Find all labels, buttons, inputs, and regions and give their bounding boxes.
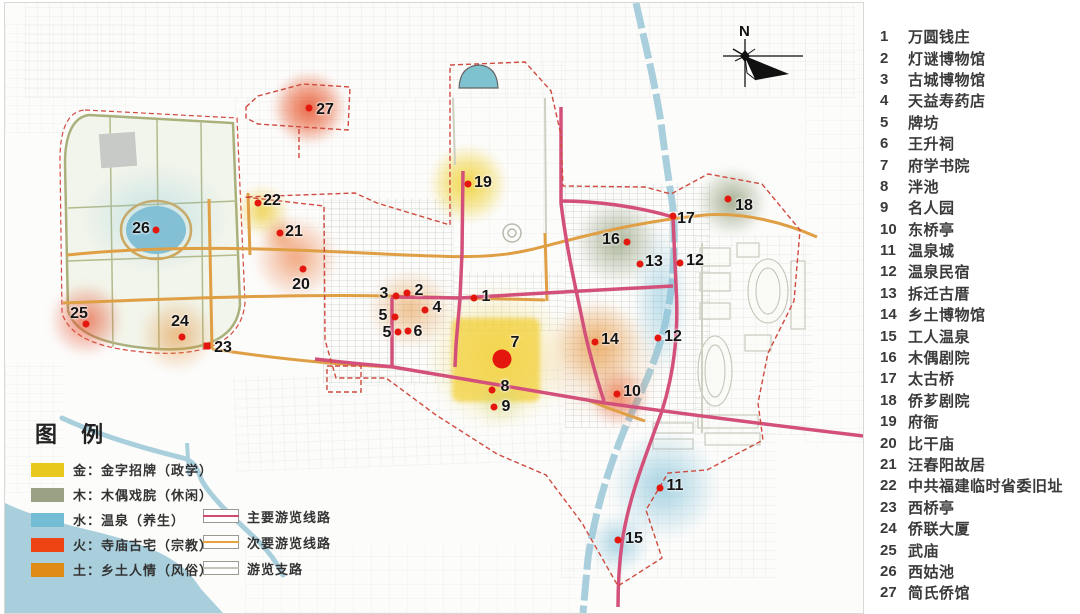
map-marker-label-6: 6	[414, 323, 423, 341]
poi-name: 名人园	[908, 197, 955, 218]
tourist-map: 1234556789101112121314151617181920212223…	[4, 2, 864, 614]
poi-number: 11	[880, 242, 908, 259]
legend-category-label: 火：寺庙古宅（宗教）	[73, 535, 213, 554]
poi-name: 工人温泉	[908, 326, 970, 347]
poi-number: 12	[880, 263, 908, 280]
legend-swatch	[31, 488, 64, 502]
map-marker-label-18: 18	[735, 197, 753, 215]
legend-category-label: 土：乡土人情（风俗）	[73, 560, 213, 579]
map-marker-label-14: 14	[601, 331, 619, 349]
legend-routes: 主要游览线路次要游览线路游览支路	[203, 503, 383, 581]
map-marker-dot-12	[677, 260, 684, 267]
legend-route-label: 游览支路	[247, 559, 303, 578]
poi-name: 东桥亭	[908, 219, 955, 240]
map-marker-dot-24	[179, 334, 186, 341]
legend-category-label: 金：金字招牌（政学）	[73, 460, 213, 479]
poi-number: 17	[880, 370, 908, 387]
map-marker-dot-20	[300, 266, 307, 273]
poi-row: 25武庙	[880, 539, 1078, 560]
map-marker-dot-3	[393, 293, 400, 300]
legend-route-label: 主要游览线路	[247, 507, 331, 526]
map-marker-label-5: 5	[379, 307, 388, 325]
legend-route-swatch	[203, 561, 239, 575]
poi-row: 10东桥亭	[880, 219, 1078, 240]
poi-name: 乡土博物馆	[908, 304, 986, 325]
legend-route-swatch	[203, 535, 239, 549]
poi-row: 19府衙	[880, 411, 1078, 432]
poi-row: 5牌坊	[880, 112, 1078, 133]
poi-name: 温泉城	[908, 240, 955, 261]
poi-row: 24侨联大厦	[880, 518, 1078, 539]
map-legend: 图 例 金：金字招牌（政学）木：木偶戏脘（休闲）水：温泉（养生）火：寺庙古宅（宗…	[31, 417, 381, 582]
map-marker-label-13: 13	[645, 253, 663, 271]
poi-number: 1	[880, 28, 908, 45]
poi-name: 王升祠	[908, 133, 955, 154]
map-marker-dot-12	[655, 335, 662, 342]
poi-row: 11温泉城	[880, 240, 1078, 261]
poi-name: 武庙	[908, 540, 939, 561]
legend-route-line	[203, 567, 239, 569]
legend-route: 次要游览线路	[203, 529, 383, 555]
legend-route: 主要游览线路	[203, 503, 383, 529]
poi-row: 1万圆钱庄	[880, 26, 1078, 47]
poi-number: 4	[880, 92, 908, 109]
poi-name: 泮池	[908, 176, 939, 197]
map-marker-dot-26	[153, 227, 160, 234]
poi-name: 西姑池	[908, 561, 955, 582]
map-marker-label-23: 23	[214, 339, 232, 357]
legend-swatch	[31, 538, 64, 552]
poi-name: 比干庙	[908, 433, 955, 454]
poi-name: 侨联大厦	[908, 518, 970, 539]
map-marker-dot-4	[422, 307, 429, 314]
poi-row: 15工人温泉	[880, 325, 1078, 346]
map-marker-label-7: 7	[511, 334, 520, 352]
map-marker-dot-13	[637, 261, 644, 268]
poi-row: 18侨芗剧院	[880, 390, 1078, 411]
poi-number: 25	[880, 542, 908, 559]
poi-row: 17太古桥	[880, 368, 1078, 389]
poi-number: 14	[880, 306, 908, 323]
map-marker-dot-19	[465, 181, 472, 188]
poi-number: 6	[880, 135, 908, 152]
poi-number: 13	[880, 285, 908, 302]
legend-swatch	[31, 513, 64, 527]
legend-route-line	[203, 515, 239, 517]
map-marker-label-27: 27	[316, 101, 334, 119]
poi-name: 府衙	[908, 411, 939, 432]
poi-name: 古城博物馆	[908, 69, 986, 90]
map-marker-label-10: 10	[623, 383, 641, 401]
map-marker-label-26: 26	[132, 220, 150, 238]
legend-category-label: 木：木偶戏脘（休闲）	[73, 485, 213, 504]
poi-number: 7	[880, 157, 908, 174]
map-marker-dot-11	[657, 485, 664, 492]
compass-icon	[705, 21, 815, 101]
poi-row: 27简氏侨馆	[880, 582, 1078, 603]
legend-swatch	[31, 463, 64, 477]
legend-route-swatch	[203, 509, 239, 523]
poi-row: 8泮池	[880, 176, 1078, 197]
poi-name: 太古桥	[908, 368, 955, 389]
poi-name: 天益寿药店	[908, 90, 986, 111]
map-marker-label-11: 11	[667, 477, 684, 495]
map-marker-label-17: 17	[677, 210, 695, 228]
poi-number: 10	[880, 221, 908, 238]
poi-row: 12温泉民宿	[880, 261, 1078, 282]
map-marker-label-19: 19	[474, 174, 492, 192]
poi-number: 2	[880, 50, 908, 67]
poi-row: 13拆迁古厝	[880, 283, 1078, 304]
map-marker-dot-22	[255, 200, 262, 207]
poi-list: 1万圆钱庄2灯谜博物馆3古城博物馆4天益寿药店5牌坊6王升祠7府学书院8泮池9名…	[880, 26, 1078, 604]
poi-number: 23	[880, 499, 908, 516]
map-marker-label-21: 21	[285, 223, 303, 241]
poi-name: 温泉民宿	[908, 261, 970, 282]
poi-row: 22中共福建临时省委旧址	[880, 475, 1078, 496]
map-marker-dot-5	[395, 329, 402, 336]
map-marker-dot-23	[204, 343, 211, 350]
map-marker-label-25: 25	[70, 305, 88, 323]
poi-panel: 1万圆钱庄2灯谜博物馆3古城博物馆4天益寿药店5牌坊6王升祠7府学书院8泮池9名…	[866, 0, 1080, 614]
map-marker-label-24: 24	[171, 313, 189, 331]
legend-title: 图 例	[35, 417, 381, 449]
poi-row: 23西桥亭	[880, 497, 1078, 518]
poi-number: 24	[880, 520, 908, 537]
poi-row: 21汪春阳故居	[880, 454, 1078, 475]
map-marker-label-12: 12	[686, 252, 704, 270]
map-marker-label-2: 2	[415, 282, 424, 300]
poi-number: 3	[880, 71, 908, 88]
poi-number: 16	[880, 349, 908, 366]
map-marker-label-1: 1	[482, 288, 491, 306]
map-marker-dot-9	[491, 404, 498, 411]
poi-name: 府学书院	[908, 155, 970, 176]
poi-number: 15	[880, 328, 908, 345]
poi-name: 木偶剧院	[908, 347, 970, 368]
map-marker-label-22: 22	[263, 192, 281, 210]
poi-row: 3古城博物馆	[880, 69, 1078, 90]
map-marker-dot-5	[392, 314, 399, 321]
poi-row: 2灯谜博物馆	[880, 47, 1078, 68]
legend-category: 金：金字招牌（政学）	[31, 457, 381, 482]
poi-number: 18	[880, 392, 908, 409]
compass-rose: N	[705, 21, 815, 101]
poi-name: 拆迁古厝	[908, 283, 970, 304]
poi-row: 4天益寿药店	[880, 90, 1078, 111]
map-marker-label-8: 8	[501, 378, 510, 396]
legend-route: 游览支路	[203, 555, 383, 581]
map-marker-dot-8	[489, 387, 496, 394]
poi-row: 16木偶剧院	[880, 347, 1078, 368]
poi-number: 22	[880, 477, 908, 494]
map-marker-dot-27	[306, 105, 313, 112]
map-marker-label-15: 15	[625, 530, 643, 548]
poi-name: 牌坊	[908, 112, 939, 133]
poi-row: 6王升祠	[880, 133, 1078, 154]
map-marker-label-20: 20	[292, 276, 310, 294]
poi-name: 西桥亭	[908, 497, 955, 518]
legend-route-line	[203, 541, 239, 543]
legend-swatch	[31, 563, 64, 577]
poi-number: 27	[880, 584, 908, 601]
map-marker-dot-2	[404, 290, 411, 297]
map-marker-dot-10	[614, 391, 621, 398]
map-marker-dot-14	[592, 339, 599, 346]
legend-category-label: 水：温泉（养生）	[73, 510, 185, 529]
map-marker-label-16: 16	[602, 231, 620, 249]
map-marker-dot-18	[725, 196, 732, 203]
poi-row: 9名人园	[880, 197, 1078, 218]
map-marker-label-4: 4	[433, 299, 442, 317]
map-marker-dot-1	[471, 295, 478, 302]
poi-number: 8	[880, 178, 908, 195]
poi-name: 汪春阳故居	[908, 454, 986, 475]
screenshot-stage: 1234556789101112121314151617181920212223…	[0, 0, 1080, 614]
map-marker-dot-16	[624, 239, 631, 246]
poi-number: 19	[880, 413, 908, 430]
map-marker-label-9: 9	[502, 398, 511, 416]
poi-name: 万圆钱庄	[908, 26, 970, 47]
map-marker-dot-21	[277, 230, 284, 237]
legend-route-label: 次要游览线路	[247, 533, 331, 552]
map-marker-dot-17	[670, 213, 677, 220]
poi-row: 14乡土博物馆	[880, 304, 1078, 325]
map-marker-label-3: 3	[380, 285, 389, 303]
poi-name: 灯谜博物馆	[908, 48, 986, 69]
poi-row: 7府学书院	[880, 154, 1078, 175]
map-marker-dot-15	[615, 537, 622, 544]
map-marker-dot-7	[493, 350, 512, 369]
poi-name: 简氏侨馆	[908, 582, 970, 603]
poi-number: 20	[880, 435, 908, 452]
poi-name: 侨芗剧院	[908, 390, 970, 411]
poi-number: 9	[880, 199, 908, 216]
poi-number: 26	[880, 563, 908, 580]
poi-name: 中共福建临时省委旧址	[908, 475, 1063, 496]
map-marker-dot-6	[405, 328, 412, 335]
poi-row: 20比干庙	[880, 432, 1078, 453]
poi-number: 21	[880, 456, 908, 473]
poi-number: 5	[880, 114, 908, 131]
map-marker-label-5: 5	[383, 324, 392, 342]
poi-row: 26西姑池	[880, 561, 1078, 582]
map-marker-label-12: 12	[664, 328, 682, 346]
